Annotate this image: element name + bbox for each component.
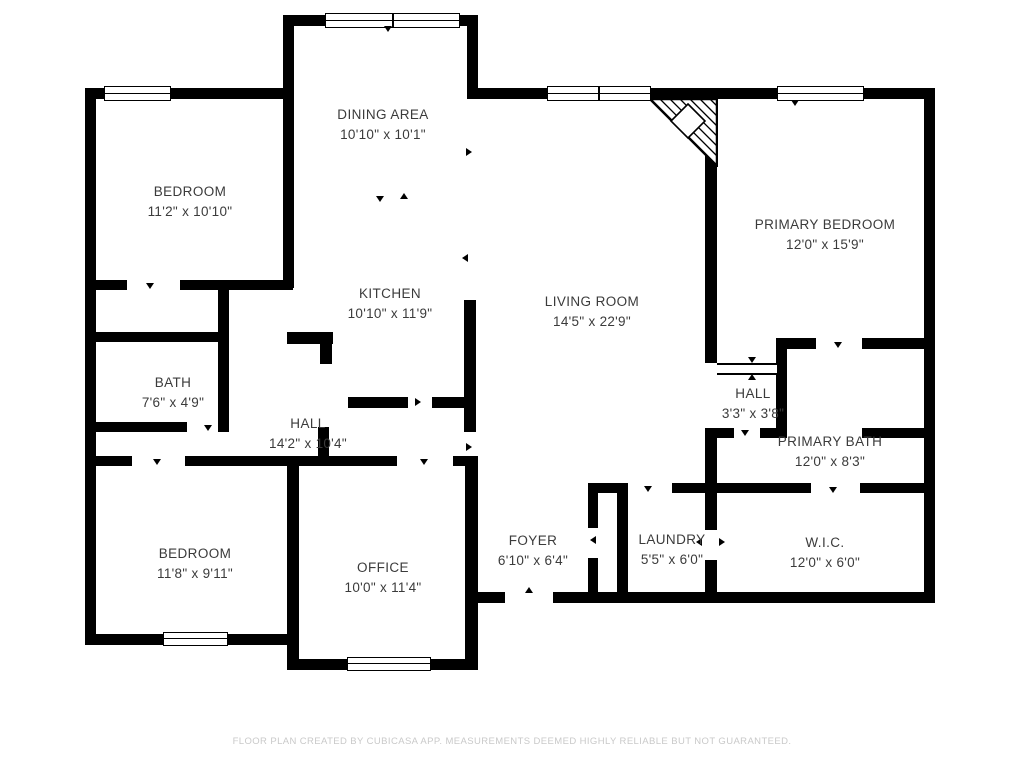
window: [163, 632, 228, 646]
wall: [588, 558, 598, 602]
room-dims: 12'0" x 15'9": [755, 235, 896, 255]
door-arrow-icon: [644, 486, 652, 492]
wall: [85, 88, 96, 645]
wall: [553, 592, 620, 603]
wall: [170, 88, 293, 99]
room-name: OFFICE: [345, 558, 422, 578]
room-dims: 10'0" x 11'4": [345, 578, 422, 598]
room-dims: 7'6" x 4'9": [142, 393, 204, 413]
door-arrow-icon: [525, 587, 533, 593]
wall: [348, 397, 408, 408]
wall: [283, 88, 294, 288]
wall: [85, 422, 187, 432]
wall: [85, 332, 229, 342]
door-arrow-icon: [415, 398, 421, 406]
door-arrow-icon: [376, 196, 384, 202]
wall: [283, 15, 327, 26]
room-name: BEDROOM: [148, 182, 233, 202]
door-arrow-icon: [834, 342, 842, 348]
door-arrow-icon: [748, 357, 756, 363]
door-arrow-icon: [741, 430, 749, 436]
room-label-hall: HALL 14'2" x 10'4": [269, 414, 347, 454]
wall: [320, 344, 332, 364]
room-name: W.I.C.: [790, 533, 860, 553]
room-dims: 14'2" x 10'4": [269, 434, 347, 454]
wall: [180, 280, 293, 290]
room-name: LAUNDRY: [638, 530, 705, 550]
door-arrow-icon: [204, 425, 212, 431]
door-arrow-icon: [791, 100, 799, 106]
window: [777, 86, 864, 101]
wall: [705, 560, 717, 602]
room-label-wic: W.I.C. 12'0" x 6'0": [790, 533, 860, 573]
wall: [226, 634, 299, 645]
door-arrow-icon: [590, 536, 596, 544]
wall: [860, 483, 935, 493]
room-dims: 10'10" x 11'9": [348, 304, 433, 324]
door-arrow-icon: [466, 148, 472, 156]
room-dims: 11'8" x 9'11": [157, 564, 233, 584]
window: [325, 13, 460, 28]
window: [104, 86, 171, 101]
wall: [185, 456, 299, 466]
footer-disclaimer: FLOOR PLAN CREATED BY CUBICASA APP. MEAS…: [0, 736, 1024, 747]
wall: [85, 634, 165, 645]
door-arrow-icon: [748, 374, 756, 380]
room-label-bedroom-1: BEDROOM 11'2" x 10'10": [148, 182, 233, 222]
wall: [617, 483, 628, 602]
room-name: LIVING ROOM: [545, 292, 639, 312]
room-label-kitchen: KITCHEN 10'10" x 11'9": [348, 284, 433, 324]
window: [347, 657, 431, 671]
wall: [283, 15, 294, 99]
room-label-hall-small: HALL 3'3" x 3'8": [722, 384, 784, 424]
wall: [85, 280, 127, 290]
wall: [287, 332, 333, 344]
room-dims: 10'10" x 10'1": [337, 125, 428, 145]
room-label-office: OFFICE 10'0" x 11'4": [345, 558, 422, 598]
wall: [467, 88, 549, 99]
room-label-bath: BATH 7'6" x 4'9": [142, 373, 204, 413]
room-label-primary-bath: PRIMARY BATH 12'0" x 8'3": [778, 432, 883, 472]
room-dims: 14'5" x 22'9": [545, 312, 639, 332]
room-label-bedroom-2: BEDROOM 11'8" x 9'11": [157, 544, 233, 584]
wall: [464, 300, 476, 400]
wall: [467, 15, 478, 99]
room-dims: 3'3" x 3'8": [722, 404, 784, 424]
room-label-dining-area: DINING AREA 10'10" x 10'1": [337, 105, 428, 145]
wall: [588, 483, 598, 528]
fireplace-icon: [650, 99, 718, 167]
wall: [705, 483, 811, 493]
room-label-laundry: LAUNDRY 5'5" x 6'0": [638, 530, 705, 570]
door-arrow-icon: [420, 459, 428, 465]
door-arrow-icon: [829, 487, 837, 493]
room-name: PRIMARY BEDROOM: [755, 215, 896, 235]
room-label-primary-bedroom: PRIMARY BEDROOM 12'0" x 15'9": [755, 215, 896, 255]
room-name: PRIMARY BATH: [778, 432, 883, 452]
wall: [299, 456, 397, 466]
door-arrow-icon: [153, 459, 161, 465]
wall: [464, 397, 476, 432]
room-dims: 5'5" x 6'0": [638, 550, 705, 570]
room-name: FOYER: [498, 531, 568, 551]
wall: [617, 592, 935, 603]
floor-plan: BEDROOM 11'2" x 10'10" DINING AREA 10'10…: [0, 0, 1024, 768]
room-name: BATH: [142, 373, 204, 393]
door-arrow-icon: [146, 283, 154, 289]
door-arrow-icon: [400, 193, 408, 199]
door-arrow-icon: [466, 443, 472, 451]
wall: [429, 659, 478, 670]
wall: [862, 338, 935, 349]
room-dims: 12'0" x 6'0": [790, 553, 860, 573]
room-name: HALL: [722, 384, 784, 404]
window: [547, 86, 651, 101]
room-label-foyer: FOYER 6'10" x 6'4": [498, 531, 568, 571]
room-dims: 11'2" x 10'10": [148, 202, 233, 222]
wall: [705, 428, 717, 530]
cased-opening: [717, 363, 777, 375]
room-name: HALL: [269, 414, 347, 434]
room-dims: 6'10" x 6'4": [498, 551, 568, 571]
room-name: KITCHEN: [348, 284, 433, 304]
room-label-living-room: LIVING ROOM 14'5" x 22'9": [545, 292, 639, 332]
wall: [465, 462, 478, 670]
room-name: BEDROOM: [157, 544, 233, 564]
door-arrow-icon: [719, 538, 725, 546]
room-dims: 12'0" x 8'3": [778, 452, 883, 472]
door-arrow-icon: [384, 26, 392, 32]
room-name: DINING AREA: [337, 105, 428, 125]
wall: [453, 456, 478, 466]
door-arrow-icon: [462, 254, 468, 262]
wall: [672, 483, 717, 493]
wall: [218, 332, 229, 432]
wall: [85, 456, 132, 466]
